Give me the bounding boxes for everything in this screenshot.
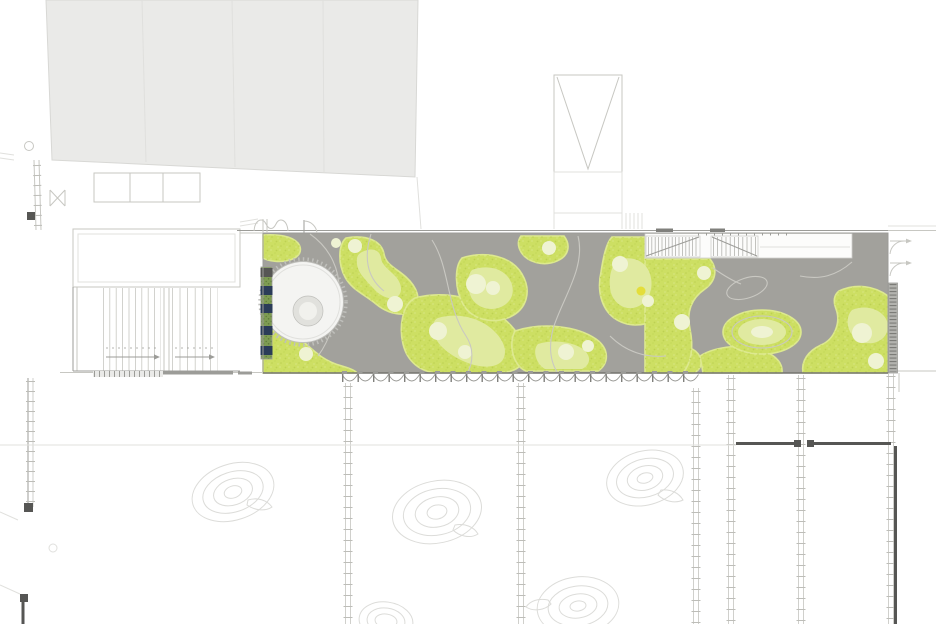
column-ladders [346,373,894,624]
manhole-circle-icon [25,142,34,151]
strip-top-edge [237,219,936,234]
column-ladder [729,375,734,624]
neighbor-building [46,0,421,229]
tree-contours [184,442,689,624]
green-wall-strip [261,267,273,359]
column-ladder [519,383,524,624]
door-swing-icon-right-1 [890,239,912,254]
strip-right-edge [889,239,913,392]
tree-contour [357,598,416,624]
west-wing [73,219,263,371]
door-swing-icon-right-2 [890,261,912,276]
column-ladder [889,373,894,624]
west-boundary-wall [0,378,57,624]
site-plan-drawing [0,0,936,624]
shaft-hatch-square [27,212,35,220]
column-ladder [346,383,351,624]
tree-contour [533,572,622,624]
stair-run-2 [711,236,758,257]
tower-shaft [554,75,642,229]
dark-wall-with-door-gap [736,440,896,624]
door-swing-icon-top [304,220,317,233]
column-ladder [799,375,804,624]
scallop-arcs [342,375,699,382]
scallop-edge-band [60,371,936,381]
site-plan-canvas [0,0,936,624]
roof-garden-strip [237,219,936,373]
escalator-cross-icon [50,190,65,206]
column-ladder [694,388,699,624]
stair-run-1 [646,236,700,257]
lower-site-lines [0,440,896,624]
side-stair-hatch [889,283,898,373]
double-door-plan-icon [254,220,288,231]
stair-band [645,234,852,259]
tree-contour [600,442,689,514]
tree-contour [387,472,488,551]
outbuilding-boxes [94,173,200,202]
tree-contour [184,452,281,531]
yellow-accent-dot [637,287,646,296]
